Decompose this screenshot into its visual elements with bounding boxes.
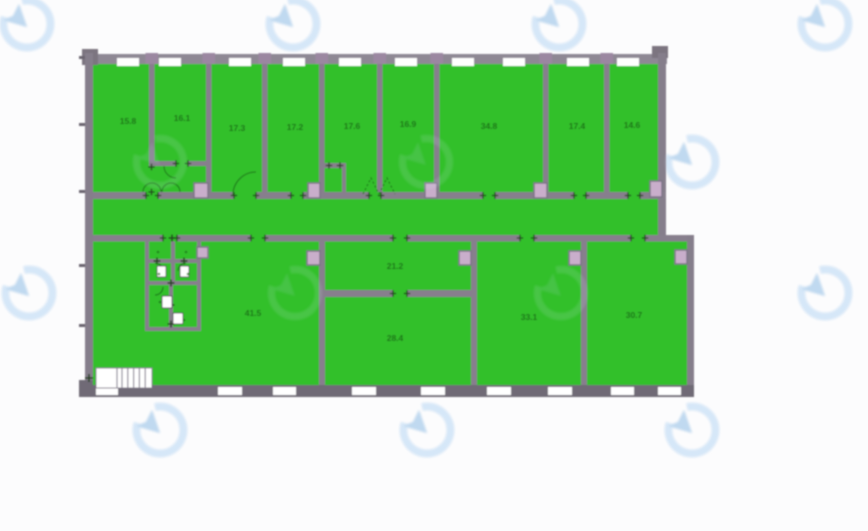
svg-text:21.2: 21.2 xyxy=(387,261,404,271)
svg-text:17.4: 17.4 xyxy=(569,121,586,131)
svg-text:41.5: 41.5 xyxy=(245,308,262,318)
svg-text:16.9: 16.9 xyxy=(400,119,417,129)
svg-text:14.6: 14.6 xyxy=(624,120,641,130)
svg-text:34.8: 34.8 xyxy=(481,121,498,131)
svg-text:17.6: 17.6 xyxy=(344,121,361,131)
svg-text:30.7: 30.7 xyxy=(626,310,643,320)
svg-text:17.2: 17.2 xyxy=(287,122,304,132)
svg-text:28.4: 28.4 xyxy=(387,333,404,343)
svg-text:33.1: 33.1 xyxy=(521,312,538,322)
svg-text:17.3: 17.3 xyxy=(229,123,246,133)
svg-text:15.8: 15.8 xyxy=(120,116,137,126)
svg-text:16.1: 16.1 xyxy=(174,113,191,123)
